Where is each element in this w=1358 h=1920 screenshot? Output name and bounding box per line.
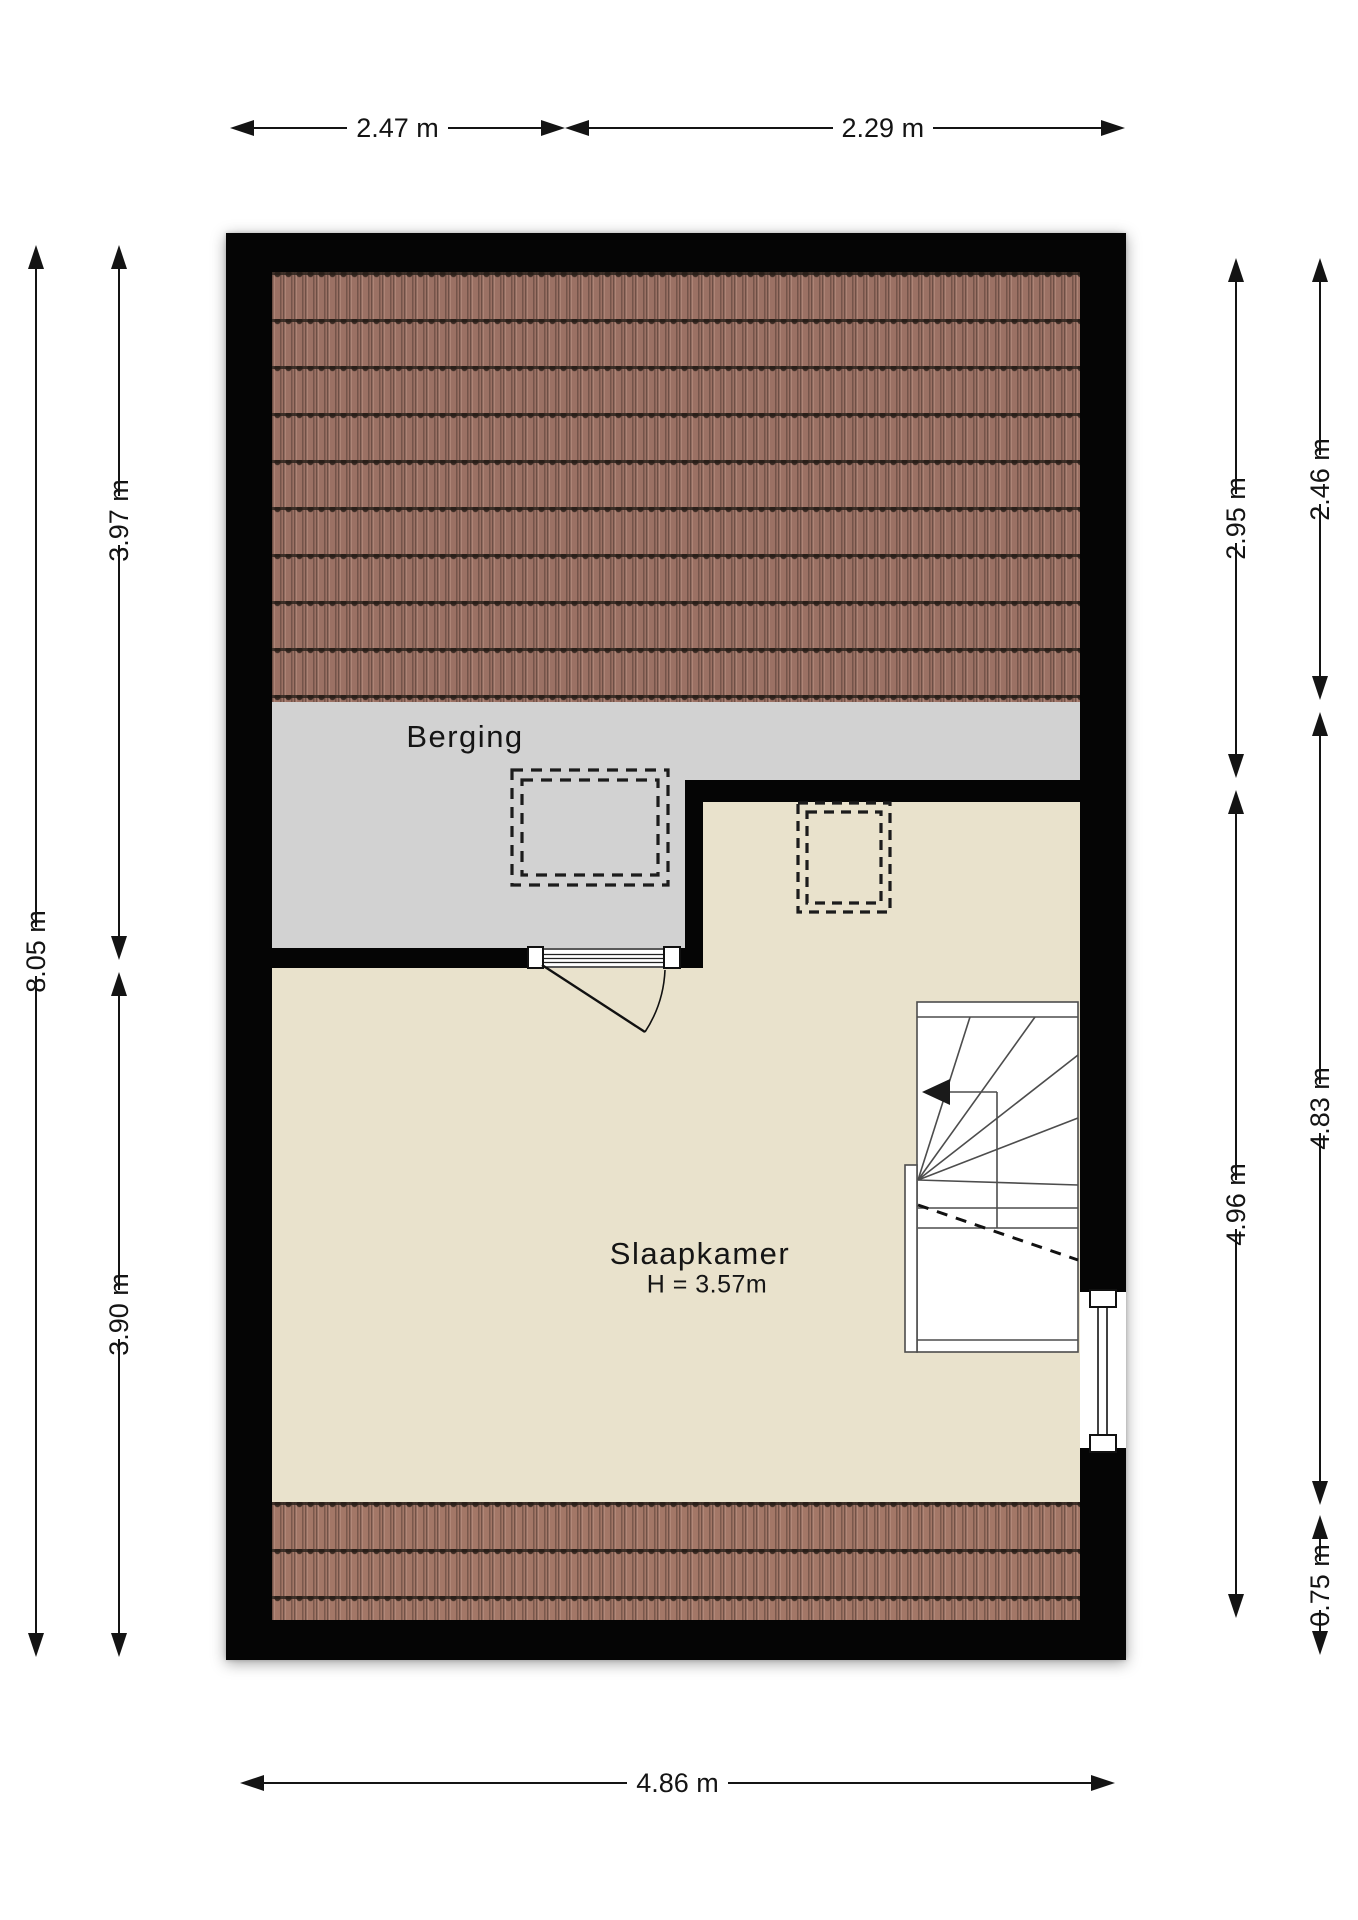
- window-sill-bottom: [1090, 1435, 1116, 1452]
- dim-left-lower: 3.90 m: [105, 972, 133, 1657]
- arrow-down-icon: [1312, 676, 1328, 700]
- window-right: [1080, 1290, 1126, 1452]
- dim-left-total: 8.05 m: [22, 245, 50, 1657]
- dim-top-right: 2.29 m: [565, 114, 1125, 142]
- arrow-down-icon: [1312, 1631, 1328, 1655]
- dim-left-upper: 3.97 m: [105, 245, 133, 960]
- arrow-right-icon: [1101, 120, 1125, 136]
- dim-label-right-inner-lower: 4.96 m: [1221, 1163, 1252, 1246]
- dim-label-left-upper: 3.97 m: [104, 479, 135, 562]
- arrow-right-icon: [541, 120, 565, 136]
- stair-rail: [905, 1165, 917, 1352]
- arrow-down-icon: [111, 1633, 127, 1657]
- dim-label-right-outer-lower: 0.75 m: [1305, 1544, 1336, 1627]
- skylight-bedroom-icon: [798, 803, 890, 912]
- door-post-left: [528, 947, 543, 968]
- arrow-up-icon: [1228, 258, 1244, 282]
- door: [528, 947, 680, 1032]
- arrow-down-icon: [28, 1633, 44, 1657]
- dim-label-left-total: 8.05 m: [21, 910, 52, 993]
- arrow-down-icon: [1228, 1594, 1244, 1618]
- dim-right-outer-middle: 4.83 m: [1306, 712, 1334, 1505]
- room-label-storage: Berging: [406, 719, 523, 755]
- arrow-up-icon: [111, 972, 127, 996]
- dim-right-inner-upper: 2.95 m: [1222, 258, 1250, 778]
- room-label-bedroom: Slaapkamer: [610, 1236, 790, 1272]
- arrow-left-icon: [565, 120, 589, 136]
- arrow-up-icon: [1312, 1515, 1328, 1539]
- door-post-right: [664, 947, 680, 968]
- door-leaf-open: [542, 965, 645, 1032]
- floor-plan-page: 2.47 m 2.29 m 4.86 m 8.05 m 3.97 m 3.90 …: [0, 0, 1358, 1920]
- arrow-down-icon: [1228, 754, 1244, 778]
- arrow-up-icon: [1312, 258, 1328, 282]
- dim-label-right-inner-upper: 2.95 m: [1221, 477, 1252, 560]
- arrow-left-icon: [230, 120, 254, 136]
- dim-label-left-lower: 3.90 m: [104, 1273, 135, 1356]
- dim-label-right-outer-upper: 2.46 m: [1305, 438, 1336, 521]
- dim-right-inner-lower: 4.96 m: [1222, 790, 1250, 1618]
- ceiling-height-note: H = 3.57m: [647, 1271, 768, 1300]
- arrow-right-icon: [1091, 1775, 1115, 1791]
- skylight-storage-icon: [512, 770, 668, 885]
- dim-label-bottom: 4.86 m: [636, 1768, 719, 1799]
- arrow-up-icon: [28, 245, 44, 269]
- window-sill-top: [1090, 1290, 1116, 1307]
- arrow-down-icon: [1312, 1481, 1328, 1505]
- dim-label-right-outer-middle: 4.83 m: [1305, 1067, 1336, 1150]
- dim-label-top-left: 2.47 m: [356, 113, 439, 144]
- dim-label-top-right: 2.29 m: [842, 113, 925, 144]
- arrow-left-icon: [240, 1775, 264, 1791]
- dim-top-left: 2.47 m: [230, 114, 565, 142]
- arrow-up-icon: [1312, 712, 1328, 736]
- dim-right-outer-lower: 0.75 m: [1306, 1515, 1334, 1655]
- dim-bottom: 4.86 m: [240, 1769, 1115, 1797]
- dim-right-outer-upper: 2.46 m: [1306, 258, 1334, 700]
- floor-plan: Berging Slaapkamer H = 3.57m: [226, 233, 1126, 1660]
- arrow-down-icon: [111, 936, 127, 960]
- plan-linework: [226, 233, 1126, 1660]
- arrow-up-icon: [1228, 790, 1244, 814]
- door-swing-arc: [645, 970, 665, 1032]
- staircase: [905, 1002, 1078, 1352]
- arrow-up-icon: [111, 245, 127, 269]
